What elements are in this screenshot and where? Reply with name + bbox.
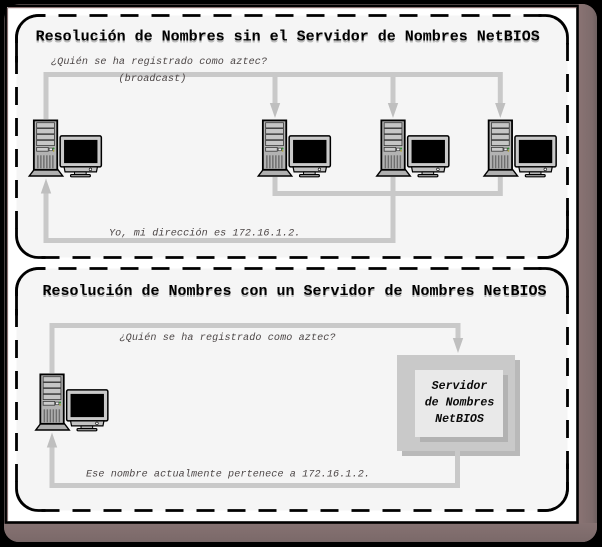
svg-text:Yo, mi dirección es 172.16.1.2: Yo, mi dirección es 172.16.1.2.: [109, 228, 300, 240]
svg-text:Ese nombre actualmente pertene: Ese nombre actualmente pertenece a 172.1…: [86, 469, 370, 481]
svg-text:Resolución de Nombres con un S: Resolución de Nombres con un Servidor de…: [42, 283, 546, 300]
svg-text:NetBIOS: NetBIOS: [435, 413, 484, 426]
svg-text:¿Quién se ha registrado como a: ¿Quién se ha registrado como aztec?: [51, 56, 267, 68]
svg-text:Resolución de Nombres sin el S: Resolución de Nombres sin el Servidor de…: [36, 29, 540, 46]
svg-text:(broadcast): (broadcast): [119, 73, 187, 85]
svg-text:¿Quién se ha registrado como a: ¿Quién se ha registrado como aztec?: [120, 332, 336, 344]
svg-text:de Nombres: de Nombres: [425, 397, 495, 410]
svg-text:Servidor: Servidor: [432, 380, 488, 393]
